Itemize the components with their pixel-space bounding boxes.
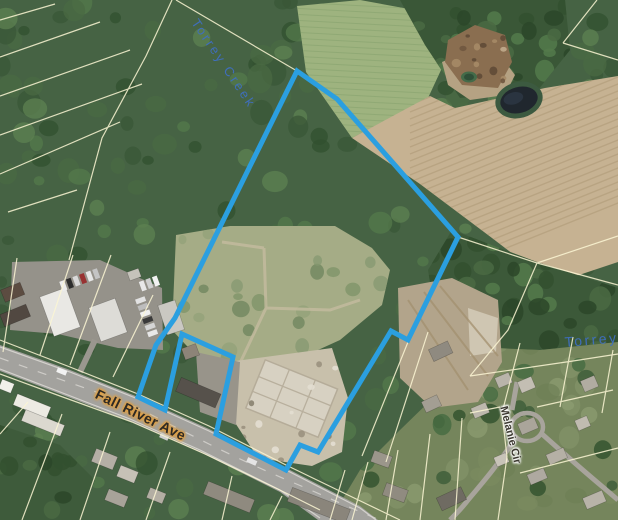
aerial-map: Torrey Creek Torrey Fall River Ave Melan… bbox=[0, 0, 618, 520]
small-pond bbox=[461, 72, 477, 83]
satellite-image bbox=[0, 0, 618, 520]
